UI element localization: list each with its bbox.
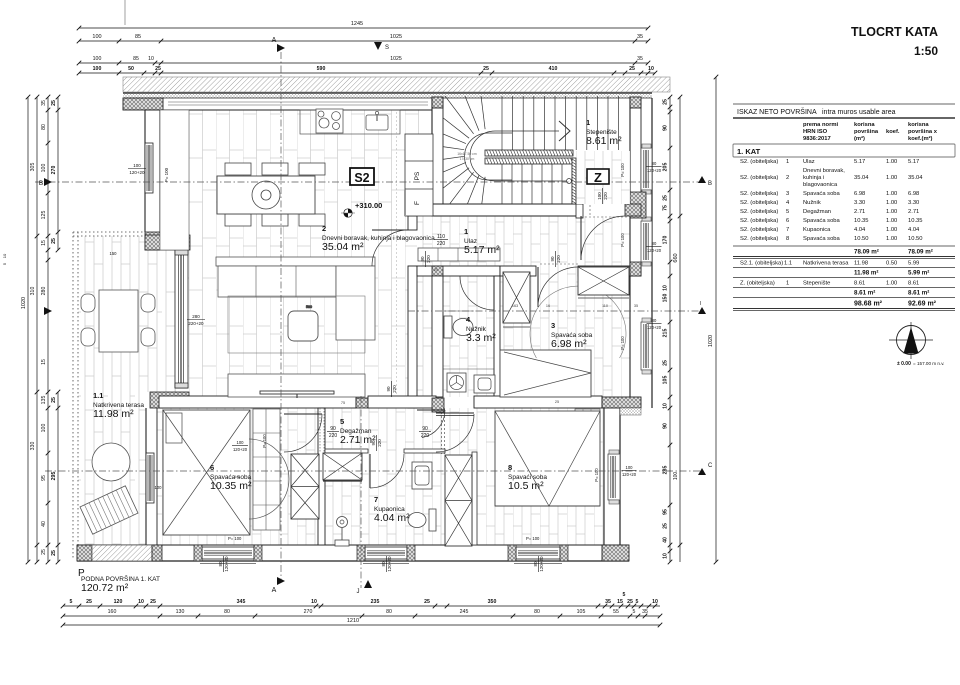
svg-text:80: 80	[381, 561, 386, 567]
svg-text:8.61 m²: 8.61 m²	[854, 290, 875, 297]
svg-text:10: 10	[663, 285, 669, 291]
svg-text:25: 25	[424, 599, 430, 605]
svg-text:Stepenište: Stepenište	[803, 281, 830, 287]
svg-text:S2. (obiteljska): S2. (obiteljska)	[740, 209, 778, 215]
svg-text:100: 100	[626, 465, 634, 470]
svg-text:P= 100: P= 100	[594, 468, 599, 482]
svg-text:6.98: 6.98	[908, 191, 919, 197]
svg-text:korisna: korisna	[908, 122, 929, 128]
svg-text:4.04: 4.04	[908, 227, 920, 233]
svg-text:P= 100: P= 100	[228, 536, 242, 541]
svg-text:10.35: 10.35	[908, 218, 923, 224]
svg-text:92.69 m²: 92.69 m²	[908, 301, 937, 308]
svg-text:40: 40	[41, 521, 47, 527]
svg-text:25: 25	[663, 360, 669, 366]
svg-text:110: 110	[602, 304, 608, 308]
svg-text:5: 5	[633, 609, 636, 615]
svg-text:6.98 m²: 6.98 m²	[551, 338, 587, 350]
svg-text:80: 80	[533, 561, 538, 567]
svg-text:P= 100: P= 100	[164, 167, 169, 182]
svg-text:10: 10	[148, 56, 154, 62]
svg-text:35.04: 35.04	[854, 175, 869, 181]
svg-text:25: 25	[483, 66, 489, 72]
svg-text:B: B	[39, 180, 43, 187]
svg-text:8: 8	[786, 236, 789, 242]
svg-text:Dnevni boravak,: Dnevni boravak,	[803, 168, 845, 174]
svg-text:90: 90	[386, 386, 391, 392]
svg-text:Ulaz: Ulaz	[803, 159, 815, 165]
svg-text:220: 220	[556, 255, 561, 263]
svg-text:5.99 m²: 5.99 m²	[908, 270, 929, 277]
svg-text:25: 25	[86, 599, 92, 605]
svg-text:S2. (obiteljska): S2. (obiteljska)	[740, 200, 778, 206]
svg-text:100: 100	[597, 192, 602, 200]
svg-text:120: 120	[114, 599, 123, 605]
svg-text:4: 4	[786, 200, 790, 206]
svg-text:280: 280	[41, 287, 47, 296]
svg-text:35.04 m²: 35.04 m²	[322, 241, 364, 253]
svg-text:25: 25	[555, 400, 559, 404]
svg-text:A: A	[272, 587, 277, 594]
svg-text:580: 580	[306, 305, 312, 309]
svg-text:35: 35	[634, 304, 638, 308]
svg-text:100: 100	[133, 163, 141, 168]
svg-text:prema normi: prema normi	[803, 122, 839, 128]
svg-text:Z: Z	[594, 170, 602, 185]
svg-text:25: 25	[51, 238, 57, 244]
svg-text:1245: 1245	[351, 21, 363, 27]
svg-text:8.61 m²: 8.61 m²	[586, 135, 622, 147]
svg-text:8.61: 8.61	[854, 281, 865, 287]
svg-text:110: 110	[437, 234, 445, 240]
svg-text:10: 10	[311, 599, 317, 605]
svg-text:120+20: 120+20	[387, 556, 392, 572]
svg-text:100: 100	[237, 440, 245, 445]
svg-text:55: 55	[613, 609, 619, 615]
svg-text:170: 170	[663, 236, 669, 245]
svg-text:1: 1	[786, 159, 789, 165]
svg-text:10.35: 10.35	[854, 218, 869, 224]
svg-text:10.50: 10.50	[908, 236, 923, 242]
svg-text:245: 245	[460, 609, 469, 615]
svg-text:10: 10	[663, 553, 669, 559]
svg-text:3: 3	[786, 191, 789, 197]
svg-text:25: 25	[629, 66, 635, 72]
svg-text:15: 15	[617, 599, 623, 605]
svg-text:4.04 m²: 4.04 m²	[374, 512, 410, 524]
svg-text:90: 90	[663, 423, 669, 429]
svg-text:220: 220	[421, 433, 430, 439]
svg-text:220+20: 220+20	[188, 321, 204, 326]
svg-text:HRN ISO: HRN ISO	[803, 129, 828, 135]
svg-text:125: 125	[41, 211, 47, 220]
svg-text:PS: PS	[414, 171, 421, 180]
svg-text:95: 95	[663, 509, 669, 515]
svg-text:površina: površina	[854, 129, 879, 135]
svg-text:5.17: 5.17	[854, 159, 865, 165]
svg-text:25: 25	[51, 100, 57, 106]
svg-text:3.30: 3.30	[854, 200, 865, 206]
svg-text:90: 90	[420, 256, 425, 262]
svg-text:6: 6	[210, 463, 214, 472]
svg-text:75: 75	[341, 401, 345, 405]
svg-text:1020: 1020	[21, 297, 27, 309]
svg-text:1.00: 1.00	[886, 200, 897, 206]
svg-text:+310.00: +310.00	[355, 201, 382, 210]
svg-text:10.35 m²: 10.35 m²	[210, 480, 252, 492]
svg-text:6: 6	[786, 218, 789, 224]
svg-text:2.71: 2.71	[908, 209, 919, 215]
svg-text:1025: 1025	[390, 56, 402, 62]
svg-text:1025: 1025	[390, 34, 402, 40]
svg-text:100: 100	[93, 66, 102, 72]
svg-text:Natkrivena terasa: Natkrivena terasa	[803, 261, 849, 267]
svg-text:2.71: 2.71	[854, 209, 865, 215]
svg-text:25: 25	[663, 523, 669, 529]
svg-text:120+20: 120+20	[224, 556, 229, 572]
svg-text:5: 5	[636, 599, 639, 605]
svg-text:1.00: 1.00	[886, 175, 897, 181]
svg-text:80: 80	[534, 609, 540, 615]
svg-text:S2. (obiteljska): S2. (obiteljska)	[740, 191, 778, 197]
svg-text:Spavaća soba: Spavaća soba	[803, 218, 841, 224]
svg-text:35: 35	[642, 609, 648, 615]
svg-text:310: 310	[30, 287, 36, 296]
svg-text:25: 25	[663, 99, 669, 105]
svg-text:11.98 m²: 11.98 m²	[93, 408, 134, 420]
svg-text:Kupaonica: Kupaonica	[803, 227, 831, 233]
svg-text:5: 5	[340, 417, 344, 426]
svg-text:2: 2	[322, 224, 326, 233]
svg-text:10: 10	[663, 403, 669, 409]
svg-text:25: 25	[155, 66, 161, 72]
svg-text:1.00: 1.00	[886, 236, 897, 242]
svg-text:135: 135	[41, 396, 47, 405]
svg-text:25: 25	[627, 599, 633, 605]
svg-text:10: 10	[648, 66, 654, 72]
svg-text:330: 330	[30, 442, 36, 451]
svg-text:5.17: 5.17	[908, 159, 919, 165]
svg-text:120.72 m²: 120.72 m²	[81, 582, 129, 594]
svg-text:1.00: 1.00	[886, 209, 897, 215]
svg-text:intra muros usable area: intra muros usable area	[822, 109, 896, 116]
svg-text:90: 90	[330, 426, 336, 432]
svg-text:S2. (obiteljska): S2. (obiteljska)	[740, 159, 778, 165]
svg-text:660: 660	[673, 253, 679, 262]
svg-text:1.00: 1.00	[886, 159, 897, 165]
svg-text:J: J	[357, 589, 360, 595]
svg-text:1.1: 1.1	[784, 261, 792, 267]
svg-text:(m²): (m²)	[854, 135, 865, 142]
svg-text:10.5 m²: 10.5 m²	[508, 480, 544, 492]
svg-text:1.00: 1.00	[886, 191, 897, 197]
svg-text:120+20: 120+20	[622, 472, 637, 477]
svg-text:78.09 m²: 78.09 m²	[908, 249, 933, 256]
svg-text:ISKAZ NETO POVRŠINA: ISKAZ NETO POVRŠINA	[737, 107, 817, 116]
svg-text:11.98: 11.98	[854, 261, 868, 267]
svg-text:163: 163	[512, 304, 518, 308]
svg-text:80: 80	[652, 161, 657, 166]
svg-text:235: 235	[371, 599, 380, 605]
svg-text:35: 35	[637, 34, 643, 40]
svg-text:150: 150	[110, 251, 118, 256]
svg-text:5.99: 5.99	[908, 261, 919, 267]
svg-text:Degažman: Degažman	[803, 209, 831, 215]
svg-text:4.04: 4.04	[854, 227, 866, 233]
svg-text:1210: 1210	[347, 618, 359, 624]
svg-text:345: 345	[237, 599, 246, 605]
svg-text:120+20: 120+20	[647, 168, 662, 173]
svg-text:15: 15	[41, 240, 47, 246]
svg-text:120+20: 120+20	[647, 248, 662, 253]
svg-text:35: 35	[637, 56, 643, 62]
svg-text:35: 35	[605, 599, 611, 605]
svg-text:90: 90	[550, 256, 555, 262]
svg-text:16: 16	[546, 304, 550, 308]
svg-text:5: 5	[623, 592, 626, 598]
svg-text:P= 100: P= 100	[620, 336, 625, 350]
svg-text:8.61 m²: 8.61 m²	[908, 290, 929, 297]
svg-text:35.04: 35.04	[908, 175, 923, 181]
svg-text:100: 100	[93, 56, 102, 62]
svg-text:1. KAT: 1. KAT	[737, 147, 761, 156]
svg-text:215: 215	[663, 329, 669, 338]
svg-text:± 0.00: ± 0.00	[897, 361, 911, 367]
svg-text:120+20: 120+20	[129, 170, 145, 175]
svg-text:5: 5	[70, 599, 73, 605]
svg-text:80: 80	[652, 241, 657, 246]
svg-text:85: 85	[135, 34, 141, 40]
svg-text:1020: 1020	[708, 335, 714, 347]
svg-text:korisna: korisna	[854, 122, 875, 128]
svg-text:10.50: 10.50	[854, 236, 869, 242]
svg-text:3: 3	[551, 321, 555, 330]
svg-text:220: 220	[603, 192, 608, 200]
svg-text:100: 100	[41, 164, 47, 173]
svg-text:6.98: 6.98	[854, 191, 865, 197]
svg-text:80: 80	[224, 609, 230, 615]
svg-text:Nužnik: Nužnik	[803, 200, 821, 206]
svg-text:220: 220	[392, 385, 397, 393]
svg-text:270: 270	[304, 609, 313, 615]
svg-text:105: 105	[577, 609, 586, 615]
svg-text:75: 75	[663, 205, 669, 211]
svg-text:1.1: 1.1	[93, 391, 103, 400]
svg-text:S2. (obiteljska): S2. (obiteljska)	[740, 175, 778, 181]
svg-text:3.3 m²: 3.3 m²	[466, 332, 496, 344]
svg-text:površina x: površina x	[908, 129, 938, 135]
svg-text:8: 8	[508, 463, 512, 472]
svg-text:P= 100: P= 100	[620, 233, 625, 247]
svg-text:120+20: 120+20	[539, 556, 544, 572]
svg-text:kuhinja i: kuhinja i	[803, 175, 824, 181]
svg-text:1.00: 1.00	[886, 281, 897, 287]
svg-text:1: 1	[586, 118, 590, 127]
svg-text:85: 85	[133, 56, 139, 62]
svg-text:koef.(m²): koef.(m²)	[908, 135, 933, 142]
svg-text:1: 1	[464, 227, 468, 236]
svg-text:1.00: 1.00	[886, 218, 897, 224]
svg-text:25: 25	[51, 550, 57, 556]
svg-text:25: 25	[41, 549, 47, 555]
svg-text:345: 345	[234, 475, 240, 479]
svg-text:S2.1. (obiteljska): S2.1. (obiteljska)	[740, 261, 783, 267]
svg-text:5.17 m²: 5.17 m²	[464, 244, 500, 256]
svg-text:205: 205	[663, 163, 669, 172]
svg-text:11.98 m²: 11.98 m²	[854, 270, 878, 277]
svg-text:100: 100	[92, 34, 101, 40]
svg-text:7: 7	[786, 227, 789, 233]
svg-text:10: 10	[138, 599, 144, 605]
svg-text:280: 280	[192, 314, 200, 319]
svg-text:P= 100: P= 100	[620, 163, 625, 177]
svg-text:9836:2017: 9836:2017	[803, 136, 831, 142]
svg-text:120+20: 120+20	[233, 447, 248, 452]
svg-text:C: C	[708, 463, 713, 469]
svg-text:5: 5	[786, 209, 789, 215]
svg-text:25: 25	[150, 599, 156, 605]
svg-text:220: 220	[377, 439, 382, 447]
svg-text:25: 25	[663, 195, 669, 201]
svg-text:220: 220	[329, 433, 338, 439]
svg-text:F: F	[414, 201, 421, 205]
svg-text:98.68 m²: 98.68 m²	[854, 301, 883, 308]
svg-text:P= 100: P= 100	[262, 434, 267, 448]
svg-text:78.09 m²: 78.09 m²	[854, 249, 879, 256]
svg-text:100: 100	[41, 424, 47, 433]
svg-text:90: 90	[371, 440, 376, 446]
svg-text:80: 80	[386, 609, 392, 615]
svg-text:TLOCRT KATA: TLOCRT KATA	[851, 25, 938, 39]
svg-text:Z. (obiteljska): Z. (obiteljska)	[740, 281, 775, 287]
svg-text:120+20: 120+20	[647, 325, 662, 330]
svg-text:B: B	[708, 181, 712, 187]
svg-text:270: 270	[51, 166, 57, 175]
svg-text:1.00: 1.00	[886, 227, 897, 233]
svg-text:0.50: 0.50	[886, 261, 897, 267]
svg-text:S: S	[385, 45, 389, 51]
svg-text:590: 590	[317, 66, 326, 72]
svg-text:10: 10	[652, 599, 658, 605]
svg-text:90: 90	[422, 426, 428, 432]
svg-text:10: 10	[2, 253, 7, 258]
svg-text:350: 350	[488, 599, 497, 605]
svg-text:105: 105	[663, 376, 669, 385]
svg-text:S2: S2	[354, 171, 369, 185]
svg-text:410: 410	[549, 66, 558, 72]
svg-text:= 157.00 m n.v.: = 157.00 m n.v.	[913, 361, 944, 366]
svg-text:220: 220	[437, 241, 446, 247]
svg-text:1:50: 1:50	[914, 44, 938, 58]
svg-text:25: 25	[434, 268, 438, 272]
svg-text:50: 50	[128, 66, 134, 72]
svg-text:160: 160	[108, 609, 117, 615]
svg-text:100: 100	[155, 485, 163, 490]
svg-text:8.61: 8.61	[908, 281, 919, 287]
svg-text:5: 5	[2, 262, 7, 265]
svg-text:90: 90	[663, 125, 669, 131]
svg-text:40: 40	[663, 537, 669, 543]
svg-text:150: 150	[663, 294, 669, 303]
svg-text:P= 100: P= 100	[526, 536, 540, 541]
svg-text:17x30 cm: 17x30 cm	[460, 157, 475, 161]
svg-text:100: 100	[673, 472, 679, 481]
svg-text:80: 80	[218, 561, 223, 567]
svg-text:220: 220	[426, 255, 431, 263]
svg-text:15: 15	[41, 359, 47, 365]
svg-text:I: I	[700, 301, 701, 307]
svg-text:S2. (obiteljska): S2. (obiteljska)	[740, 227, 778, 233]
svg-text:295: 295	[51, 472, 57, 481]
svg-text:3.30: 3.30	[908, 200, 919, 206]
svg-text:blagovaonica: blagovaonica	[803, 182, 838, 188]
svg-text:130: 130	[176, 609, 185, 615]
svg-text:80: 80	[41, 124, 47, 130]
svg-text:16x17.50 cm: 16x17.50 cm	[457, 152, 477, 156]
svg-text:25: 25	[51, 397, 57, 403]
svg-text:A: A	[272, 37, 277, 44]
svg-text:285: 285	[663, 466, 669, 475]
svg-text:S2. (obiteljska): S2. (obiteljska)	[740, 218, 778, 224]
svg-text:koef.: koef.	[886, 129, 900, 135]
svg-text:80: 80	[652, 318, 657, 323]
svg-text:2: 2	[786, 175, 789, 181]
svg-text:S2. (obiteljska): S2. (obiteljska)	[740, 236, 778, 242]
svg-text:305: 305	[30, 163, 36, 172]
svg-text:35: 35	[41, 100, 47, 106]
svg-text:95: 95	[41, 475, 47, 481]
svg-text:1: 1	[786, 281, 789, 287]
svg-text:Spavaća soba: Spavaća soba	[803, 236, 841, 242]
svg-text:7: 7	[374, 495, 378, 504]
svg-text:Spavaća soba: Spavaća soba	[803, 191, 841, 197]
